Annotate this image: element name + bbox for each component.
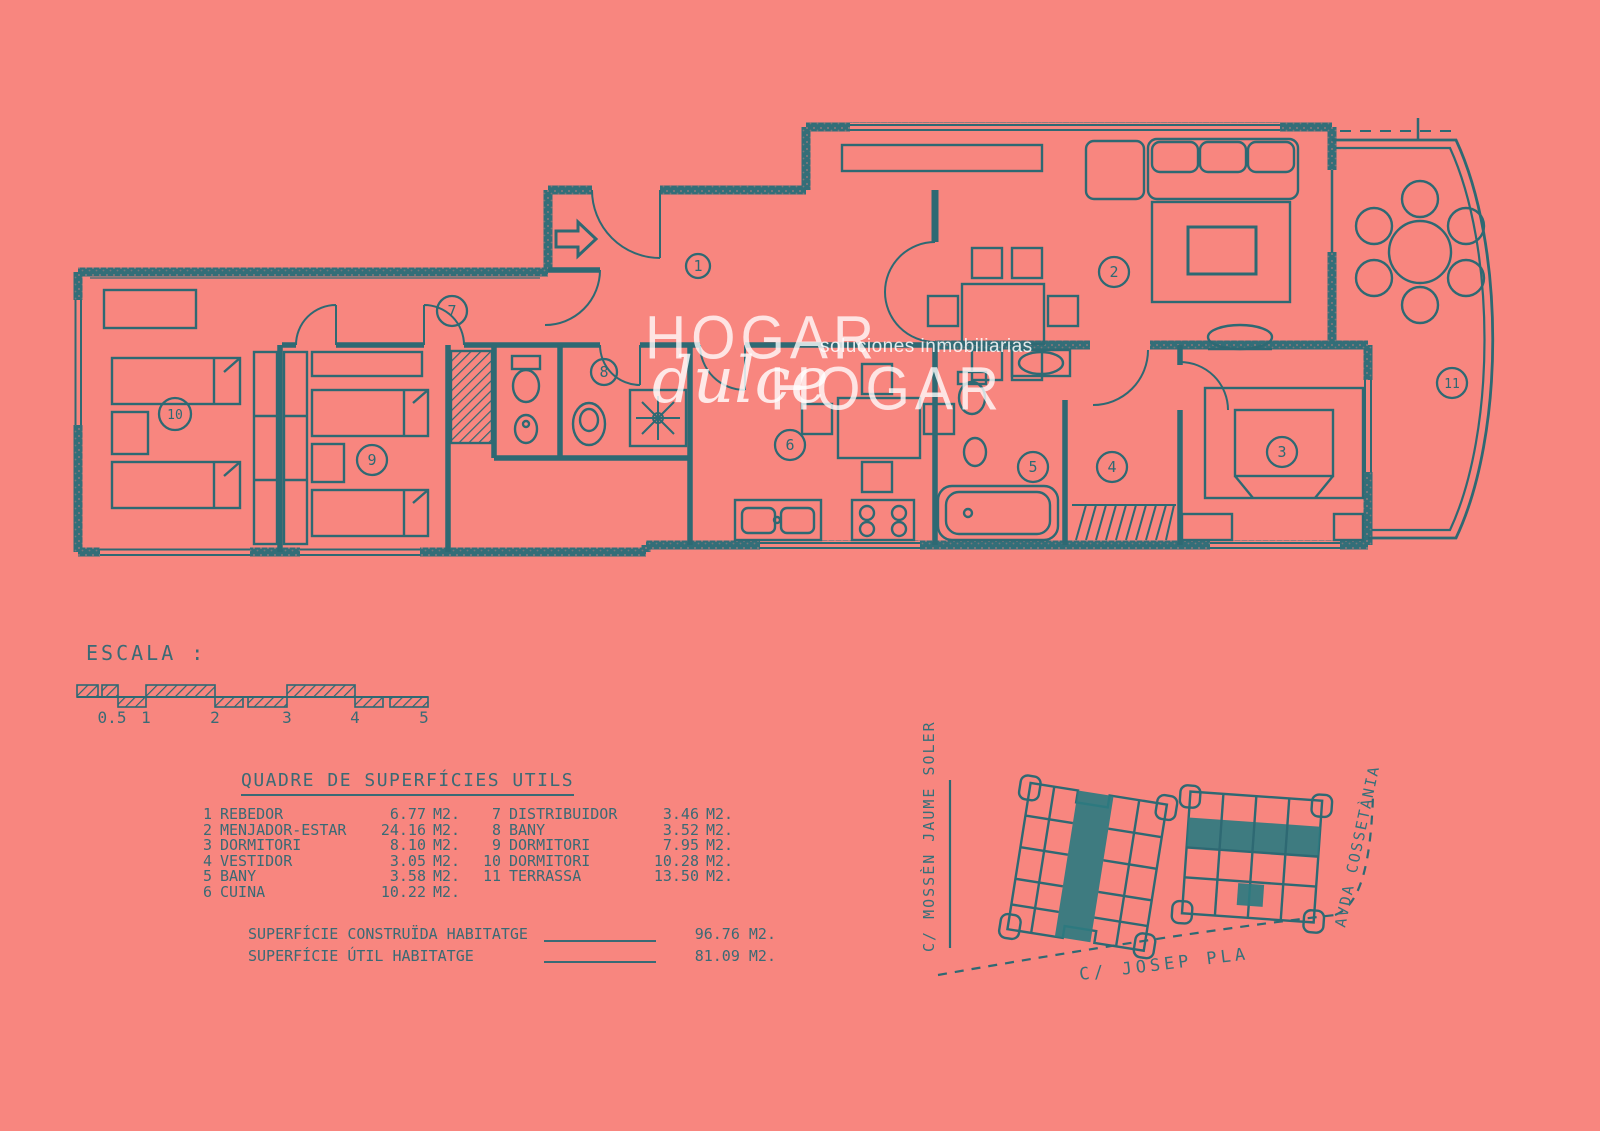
room-label-4: 4 <box>1097 452 1127 482</box>
terrace-furniture <box>1356 181 1484 323</box>
scanned-floorplan-page: 1 2 3 4 5 6 7 8 9 10 11 ESCALA : <box>0 0 1600 1131</box>
room-label-11: 11 <box>1437 368 1467 398</box>
street-label-mossen-jaume-soler: C/ MOSSÈN JAUME SOLER <box>919 720 938 952</box>
svg-text:4: 4 <box>1107 458 1116 476</box>
scale-tick: 5 <box>419 708 429 727</box>
site-building-left <box>996 773 1178 962</box>
room-label-5: 5 <box>1018 452 1048 482</box>
surfaces-table-right-column: 7DISTRIBUIDOR3.46M2. 8BANY3.52M2. 9DORMI… <box>479 807 733 885</box>
svg-text:6: 6 <box>785 436 794 454</box>
scale-tick: 3 <box>282 708 292 727</box>
room-label-6: 6 <box>775 430 805 460</box>
site-building-right <box>1171 785 1332 933</box>
terrace-outline <box>1332 118 1493 538</box>
svg-text:1: 1 <box>693 257 702 275</box>
total-row: SUPERFÍCIE ÚTIL HABITATGE 81.09 M2. <box>248 946 776 968</box>
watermark-word2: HOGAR <box>770 353 1004 424</box>
street-label-avda-cossetania: AVDA COSSETÀNIA <box>1330 763 1383 929</box>
surfaces-table-left-column: 1REBEDOR6.77M2. 2MENJADOR-ESTAR24.16M2. … <box>190 807 460 901</box>
surfaces-table-title: QUADRE DE SUPERFÍCIES UTILS <box>241 770 574 796</box>
closet <box>451 351 492 443</box>
svg-text:10: 10 <box>167 408 183 423</box>
room-label-10: 10 <box>159 398 191 430</box>
scale-bar: ESCALA : 0.5 1 2 3 4 5 <box>77 641 429 727</box>
total-underline <box>544 940 656 942</box>
scale-tick: 4 <box>350 708 360 727</box>
svg-text:5: 5 <box>1028 458 1037 476</box>
room-label-8: 8 <box>591 359 617 385</box>
svg-text:3: 3 <box>1277 443 1286 461</box>
bedroom3-furniture <box>1182 325 1363 540</box>
total-row: SUPERFÍCIE CONSTRUÏDA HABITATGE 96.76 M2… <box>248 924 776 946</box>
vestidor-rail <box>1072 505 1176 540</box>
surface-row: 11TERRASSA13.50M2. <box>479 869 733 885</box>
total-underline <box>544 961 656 963</box>
scale-label: ESCALA : <box>86 641 206 665</box>
svg-text:9: 9 <box>367 451 376 469</box>
site-map: C/ MOSSÈN JAUME SOLER AVDA COSSETÀNIA C/… <box>919 720 1383 985</box>
surfaces-totals: SUPERFÍCIE CONSTRUÏDA HABITATGE 96.76 M2… <box>248 924 776 967</box>
scale-tick: 0.5 <box>98 708 127 727</box>
svg-text:8: 8 <box>599 363 608 381</box>
street-label-josep-pla: C/ JOSEP PLA <box>1078 944 1250 985</box>
surface-row: 6CUINA10.22M2. <box>190 885 460 901</box>
svg-text:2: 2 <box>1109 263 1118 281</box>
scale-tick: 1 <box>141 708 151 727</box>
room-label-9: 9 <box>357 445 387 475</box>
svg-text:7: 7 <box>447 302 456 320</box>
floorplan-drawing: 1 2 3 4 5 6 7 8 9 10 11 ESCALA : <box>0 0 1600 1131</box>
room-label-3: 3 <box>1267 437 1297 467</box>
svg-text:11: 11 <box>1444 377 1460 392</box>
entry-arrow-icon <box>556 222 596 256</box>
room-label-2: 2 <box>1099 257 1129 287</box>
scale-tick: 2 <box>210 708 220 727</box>
room-label-7: 7 <box>437 296 467 326</box>
room-label-1: 1 <box>686 254 710 278</box>
wc-fixtures <box>512 356 540 443</box>
